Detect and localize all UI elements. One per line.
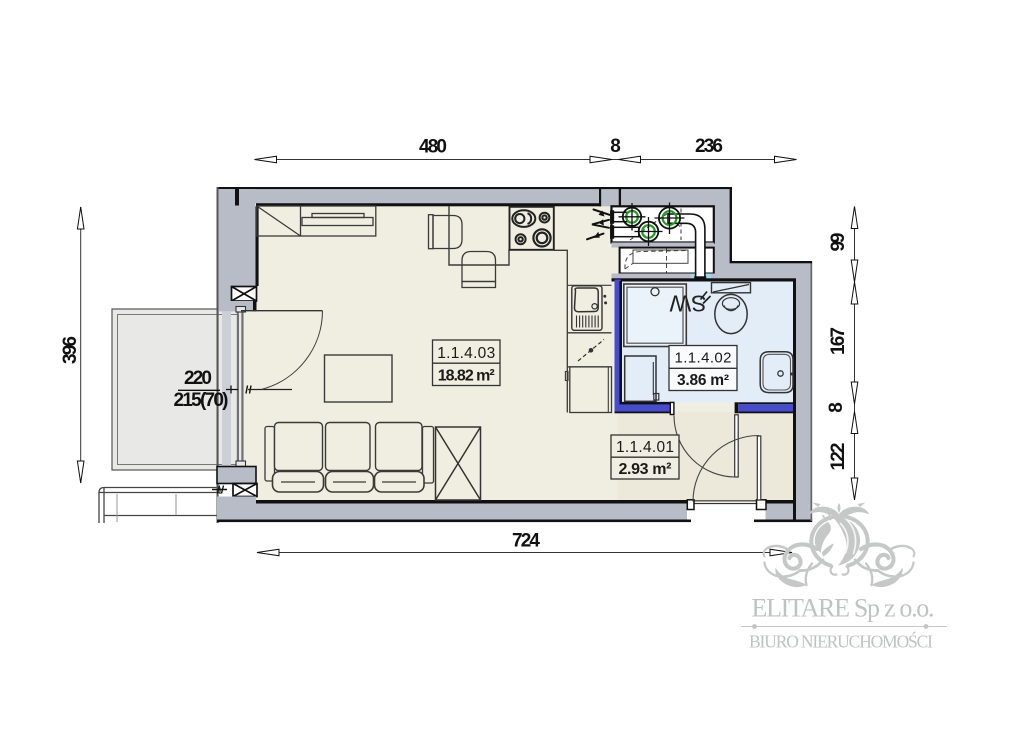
svg-text:2.93 m²: 2.93 m²: [619, 461, 672, 478]
svg-text:396: 396: [60, 336, 81, 364]
svg-text:ELITARE Sp z o.o.: ELITARE Sp z o.o.: [752, 594, 935, 623]
svg-text:1.1.4.02: 1.1.4.02: [675, 350, 732, 367]
svg-text:122: 122: [828, 443, 849, 471]
svg-text:3.86 m²: 3.86 m²: [677, 372, 729, 389]
svg-text:18.82 m²: 18.82 m²: [438, 368, 495, 385]
svg-text:480: 480: [419, 137, 447, 158]
svg-text:215(70): 215(70): [174, 390, 229, 411]
svg-text:1.1.4.03: 1.1.4.03: [437, 345, 495, 362]
svg-text:220: 220: [184, 368, 212, 389]
svg-text:BIURO NIERUCHOMOŚCI: BIURO NIERUCHOMOŚCI: [749, 632, 933, 652]
svg-text:8: 8: [826, 402, 847, 413]
svg-text:724: 724: [512, 531, 540, 552]
svg-text:8: 8: [610, 136, 621, 157]
svg-text:236: 236: [695, 136, 723, 157]
svg-text:1.1.4.01: 1.1.4.01: [616, 439, 674, 456]
svg-text:99: 99: [828, 233, 849, 252]
svg-text:SW: SW: [669, 291, 706, 317]
svg-text:167: 167: [828, 327, 849, 355]
